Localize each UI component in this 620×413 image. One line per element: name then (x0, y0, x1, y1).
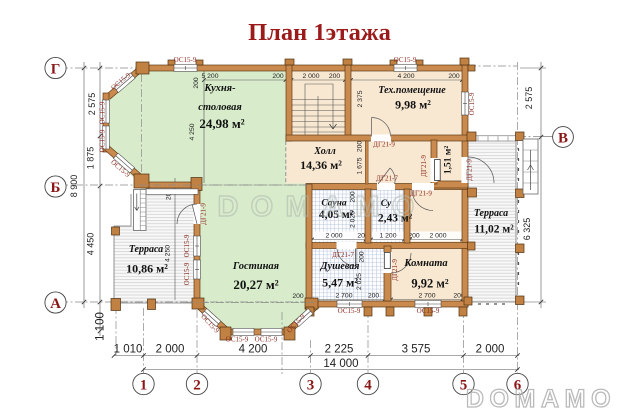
svg-text:24,98 м²: 24,98 м² (199, 116, 244, 131)
svg-text:Терраса: Терраса (129, 244, 163, 255)
svg-text:3: 3 (307, 378, 315, 394)
svg-text:3 575: 3 575 (402, 344, 431, 356)
svg-text:5,47 м²: 5,47 м² (322, 276, 358, 290)
svg-text:ДГ21-9: ДГ21-9 (373, 141, 395, 149)
svg-text:ОС15-9: ОС15-9 (183, 262, 191, 285)
svg-text:2 000: 2 000 (476, 344, 505, 356)
svg-text:6 325: 6 325 (522, 218, 532, 241)
svg-text:2 700: 2 700 (335, 293, 352, 300)
svg-text:Б: Б (51, 180, 61, 196)
svg-text:2 700: 2 700 (418, 293, 435, 300)
svg-text:200: 200 (448, 73, 460, 80)
svg-text:4 450: 4 450 (86, 233, 96, 256)
svg-text:4 200: 4 200 (239, 344, 268, 356)
svg-text:Гостиная: Гостиная (232, 261, 280, 272)
svg-text:Терраса: Терраса (474, 208, 508, 219)
svg-text:ОС15-9: ОС15-9 (174, 56, 197, 64)
svg-text:ОС15-9: ОС15-9 (468, 92, 476, 115)
svg-text:Комната: Комната (403, 258, 447, 269)
svg-text:4 250: 4 250 (165, 245, 172, 262)
svg-text:DOMAMO: DOMAMO (217, 191, 426, 223)
svg-text:2 000: 2 000 (429, 233, 446, 240)
svg-text:200: 200 (292, 293, 304, 300)
svg-text:2: 2 (193, 378, 201, 394)
svg-text:1 875: 1 875 (86, 147, 96, 170)
svg-text:ДГ21-7: ДГ21-7 (376, 175, 398, 183)
svg-text:2 225: 2 225 (325, 344, 354, 356)
svg-text:20,27 м²: 20,27 м² (233, 277, 278, 292)
svg-text:ОС15-9: ОС15-9 (338, 307, 361, 315)
svg-text:2 000: 2 000 (156, 344, 185, 356)
svg-text:ОС15-9: ОС15-9 (226, 336, 249, 344)
svg-text:DOMAMO: DOMAMO (466, 385, 616, 413)
svg-text:Кухня-: Кухня- (203, 83, 236, 94)
svg-text:4: 4 (364, 378, 372, 394)
svg-text:4 200: 4 200 (397, 73, 414, 80)
svg-text:14 000: 14 000 (323, 358, 358, 370)
svg-text:2 000: 2 000 (325, 233, 342, 240)
svg-text:1 675: 1 675 (357, 157, 364, 174)
svg-text:9,98 м²: 9,98 м² (395, 98, 431, 112)
svg-text:200: 200 (329, 73, 341, 80)
svg-text:200: 200 (193, 77, 200, 89)
svg-text:ОС15-9: ОС15-9 (99, 101, 107, 124)
svg-text:ОС15-9: ОС15-9 (417, 307, 440, 315)
svg-text:ДГ21-7: ДГ21-7 (332, 251, 354, 259)
svg-text:Тех.помещение: Тех.помещение (378, 85, 446, 96)
svg-text:1 100: 1 100 (95, 312, 107, 341)
svg-text:Г: Г (51, 62, 61, 78)
svg-text:14,36 м²: 14,36 м² (300, 158, 342, 172)
svg-text:ОС15-9: ОС15-9 (99, 129, 107, 152)
svg-text:ДГ21-9: ДГ21-9 (200, 203, 208, 225)
svg-text:Душевая: Душевая (320, 261, 360, 272)
svg-text:200: 200 (272, 73, 284, 80)
svg-text:1,51 м²: 1,51 м² (444, 146, 454, 174)
svg-text:Холл: Холл (313, 146, 335, 157)
svg-text:10,86 м²: 10,86 м² (126, 262, 168, 276)
svg-text:200: 200 (359, 251, 366, 263)
svg-text:ОС15-9: ОС15-9 (394, 56, 417, 64)
svg-text:2 575: 2 575 (87, 93, 97, 116)
svg-text:столовая: столовая (198, 102, 242, 113)
svg-text:2 000: 2 000 (302, 73, 319, 80)
svg-text:ОС15-9: ОС15-9 (183, 234, 191, 257)
svg-text:200: 200 (357, 141, 364, 153)
svg-text:2 575: 2 575 (524, 87, 534, 110)
svg-text:1 200: 1 200 (379, 233, 396, 240)
svg-text:1 010: 1 010 (114, 344, 143, 356)
svg-text:ДГ21-9: ДГ21-9 (420, 155, 428, 177)
svg-text:2 375: 2 375 (357, 90, 364, 107)
svg-text:11,02 м²: 11,02 м² (474, 224, 514, 236)
svg-text:В: В (558, 131, 568, 147)
svg-text:1: 1 (140, 378, 148, 394)
svg-text:8 900: 8 900 (69, 175, 79, 198)
svg-text:ОС15-9: ОС15-9 (255, 336, 278, 344)
svg-text:4 250: 4 250 (189, 123, 196, 140)
svg-text:А: А (50, 296, 61, 312)
svg-text:200: 200 (368, 293, 380, 300)
svg-text:9,92 м²: 9,92 м² (411, 277, 449, 291)
svg-text:ДГ21-9: ДГ21-9 (391, 259, 399, 281)
svg-text:ДГ21-9: ДГ21-9 (466, 159, 474, 181)
svg-text:План 1этажа: План 1этажа (248, 19, 391, 46)
